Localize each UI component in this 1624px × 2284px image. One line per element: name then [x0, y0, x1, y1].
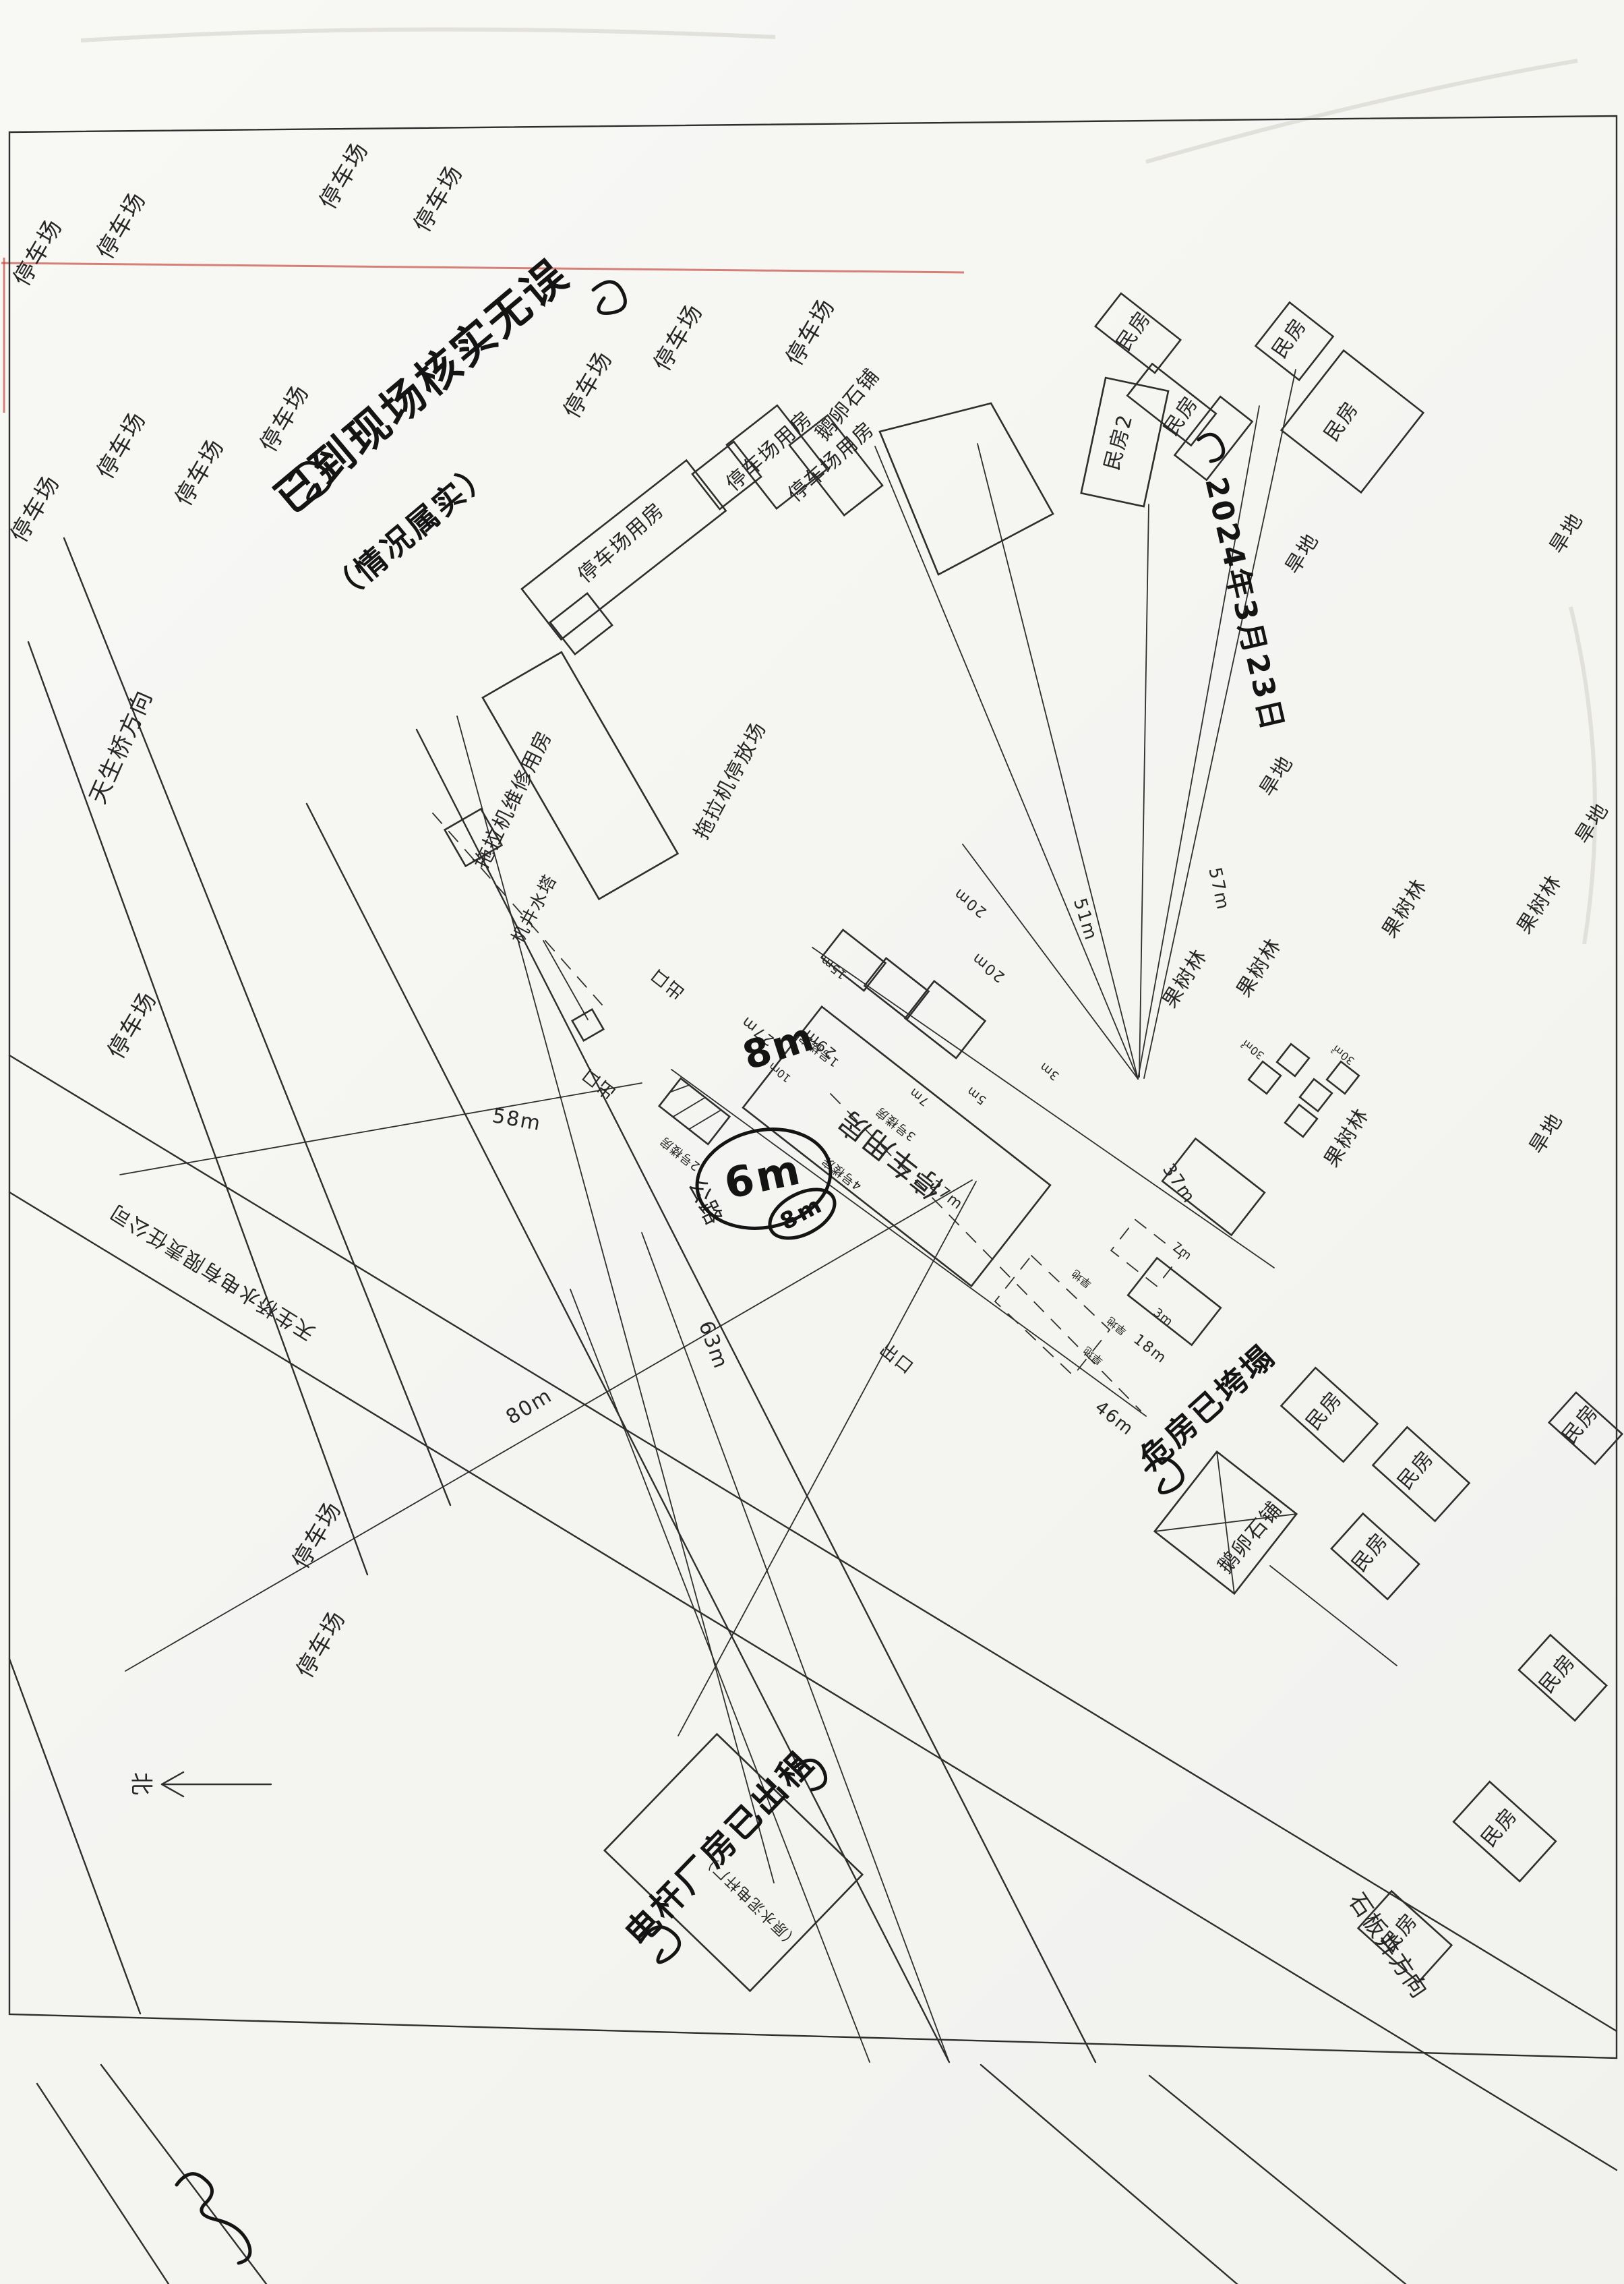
road-edge-below-border: [101, 2065, 266, 2284]
road-edge-below-border: [981, 2065, 1237, 2284]
label-exit: 出口: [578, 1063, 620, 1103]
label-residence: 民房: [1393, 1446, 1439, 1494]
label-parking: 停车场: [287, 1497, 347, 1574]
distance-58m: 58m: [490, 1104, 543, 1136]
label-parking: 停车场: [314, 138, 374, 214]
distance-46m: 46m: [1091, 1397, 1137, 1440]
label-tractor-repair: 拖拉机维修用房: [470, 726, 558, 873]
handwritten-note-main: 已到现场核实无误: [266, 250, 578, 524]
scanner-red-line: [1, 263, 964, 272]
cobble-callout-line: [1270, 1566, 1397, 1666]
label-dryland-small: 旱地: [1104, 1314, 1129, 1338]
handwritten-scribble: [1199, 434, 1224, 461]
label-residence: 民房: [1112, 306, 1156, 355]
yard-building: [880, 403, 1053, 575]
survey-line-51m: [875, 446, 1138, 1079]
label-parking: 停车场: [92, 407, 152, 484]
label-tractor-yard: 拖拉机停放场: [690, 718, 771, 844]
tiny-shed: [1300, 1079, 1332, 1111]
label-parking: 停车场: [558, 347, 618, 423]
well-tower-structure: [572, 1009, 603, 1041]
label-cobble: 鹅卵石铺: [1213, 1497, 1287, 1579]
label-dryland: 旱地: [1281, 529, 1324, 579]
label-exit: 出口: [646, 964, 689, 1003]
survey-line: [570, 1289, 870, 2062]
distance-5m: 5m: [964, 1084, 989, 1108]
distance-3m: 3m: [1151, 1306, 1176, 1330]
label-parking: 停车场: [291, 1606, 351, 1683]
road-edge-below-border: [1149, 2076, 1406, 2284]
compound-row-building: [864, 958, 928, 1019]
label-orchard: 果树林: [1232, 934, 1287, 1001]
distance-7m: 7m: [1170, 1239, 1195, 1264]
label-well-tower: 机井水塔: [508, 871, 561, 947]
scanned-site-plan: 北 停车场 停车场 停车场 停车场 停车场 停车场 停车场 停车场 停车场 停车…: [0, 0, 1624, 2284]
survey-line-63m: [457, 716, 774, 1883]
distance-80m: 80m: [502, 1384, 557, 1430]
label-residence: 民房: [1558, 1400, 1604, 1448]
label-orchard: 果树林: [1158, 945, 1213, 1012]
label-parking: 停车场: [5, 471, 65, 548]
label-orchard: 果树林: [1378, 875, 1433, 942]
handwritten-scribble: [593, 282, 625, 314]
handwritten-6m: 6m: [720, 1144, 806, 1208]
paper-crease: [1146, 61, 1577, 162]
tiny-shed: [1277, 1044, 1309, 1076]
well-tower-callout-line: [543, 941, 588, 1020]
label-orchard: 果树林: [1320, 1104, 1375, 1171]
dashed-boundary: [433, 813, 602, 1005]
label-parking: 停车场: [92, 187, 152, 264]
label-dryland: 旱地: [1255, 752, 1298, 801]
label-residence2: 民房2: [1100, 411, 1138, 473]
label-parking: 停车场: [255, 380, 315, 457]
handwritten-plant-note: 电杆厂房已出租: [618, 1743, 822, 1953]
label-dryland: 旱地: [1525, 1109, 1568, 1159]
label-dryland-small: 旱地: [1069, 1267, 1094, 1291]
label-dryland: 旱地: [1545, 509, 1588, 558]
distance-57m: 57m: [1204, 866, 1233, 912]
distance-51m: 51m: [1069, 896, 1102, 943]
road-tianshengqiao-edge: [28, 642, 367, 1575]
dashed-shed: [1111, 1220, 1180, 1287]
survey-ray: [978, 444, 1138, 1079]
label-company: 天生桥水电有限责任公司: [105, 1199, 319, 1345]
label-building-no2: 2号楼房: [657, 1134, 703, 1173]
road-edge-below-border: [37, 2084, 169, 2284]
distance-7m: 7m: [907, 1085, 932, 1109]
survey-ray: [1139, 504, 1149, 1077]
label-parking: 停车场: [649, 299, 709, 376]
label-exit: 出口: [876, 1340, 918, 1379]
handwritten-date: 2024年3月23日: [1198, 474, 1290, 736]
paper-crease: [81, 30, 775, 40]
survey-line-58m: [120, 1083, 642, 1175]
label-parking: 停车场: [102, 987, 162, 1064]
handwritten-scribble: [177, 2174, 250, 2263]
label-area-30: 30㎡: [1329, 1043, 1356, 1067]
tiny-shed: [1327, 1061, 1359, 1094]
road-edge: [9, 1659, 140, 2014]
tiny-shed: [1249, 1061, 1281, 1094]
label-parking: 停车场: [781, 294, 841, 371]
distance-20m: 20m: [968, 949, 1008, 985]
label-parking: 停车场: [409, 160, 469, 237]
label-parking: 停车场: [170, 434, 230, 511]
label-orchard: 果树林: [1513, 871, 1567, 938]
label-residence: 民房: [1320, 397, 1364, 446]
distance-3m: 3m: [1037, 1059, 1062, 1084]
tiny-shed: [1285, 1105, 1317, 1137]
paper-crease: [1571, 607, 1595, 944]
distance-63m: 63m: [694, 1318, 733, 1372]
distance-18m: 18m: [1130, 1331, 1170, 1368]
label-residence: 民房: [1477, 1803, 1523, 1852]
label-dryland: 旱地: [1571, 799, 1614, 848]
distance-20m: 20m: [950, 884, 990, 920]
site-plan-canvas: 北 停车场 停车场 停车场 停车场 停车场 停车场 停车场 停车场 停车场 停车…: [0, 0, 1624, 2284]
company-road-edge: [9, 1192, 1617, 2170]
label-area-30: 30㎡: [1239, 1037, 1266, 1062]
label-dryland-small: 旱地: [1081, 1344, 1106, 1368]
printed-plant-label: （原水泥电杆厂）: [698, 1848, 803, 1950]
north-label: 北: [127, 1772, 154, 1796]
label-parking: 停车场: [8, 214, 68, 291]
label-residence: 民房: [1302, 1386, 1348, 1435]
